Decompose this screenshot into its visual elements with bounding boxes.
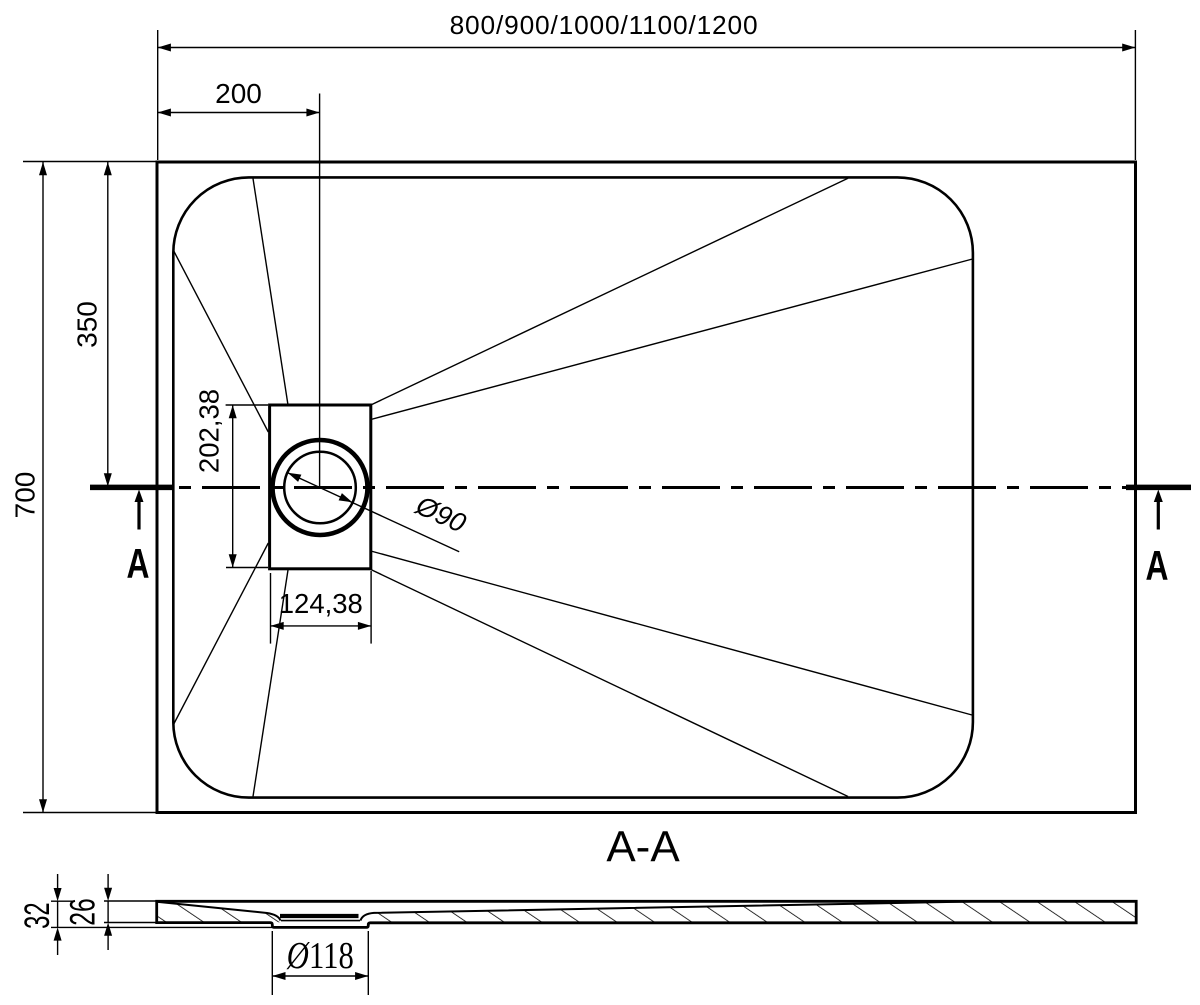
svg-text:32: 32 bbox=[18, 902, 57, 929]
svg-text:800/900/1000/1100/1200: 800/900/1000/1100/1200 bbox=[450, 10, 758, 40]
svg-text:700: 700 bbox=[10, 472, 41, 519]
svg-text:A: A bbox=[127, 540, 150, 587]
svg-text:A: A bbox=[1146, 542, 1169, 589]
svg-text:A-A: A-A bbox=[606, 823, 680, 872]
svg-text:26: 26 bbox=[64, 898, 103, 926]
svg-text:Ø118: Ø118 bbox=[286, 935, 354, 977]
svg-text:200: 200 bbox=[215, 78, 262, 109]
svg-text:124,38: 124,38 bbox=[279, 588, 363, 619]
svg-text:202,38: 202,38 bbox=[194, 389, 225, 473]
svg-text:350: 350 bbox=[72, 301, 103, 348]
